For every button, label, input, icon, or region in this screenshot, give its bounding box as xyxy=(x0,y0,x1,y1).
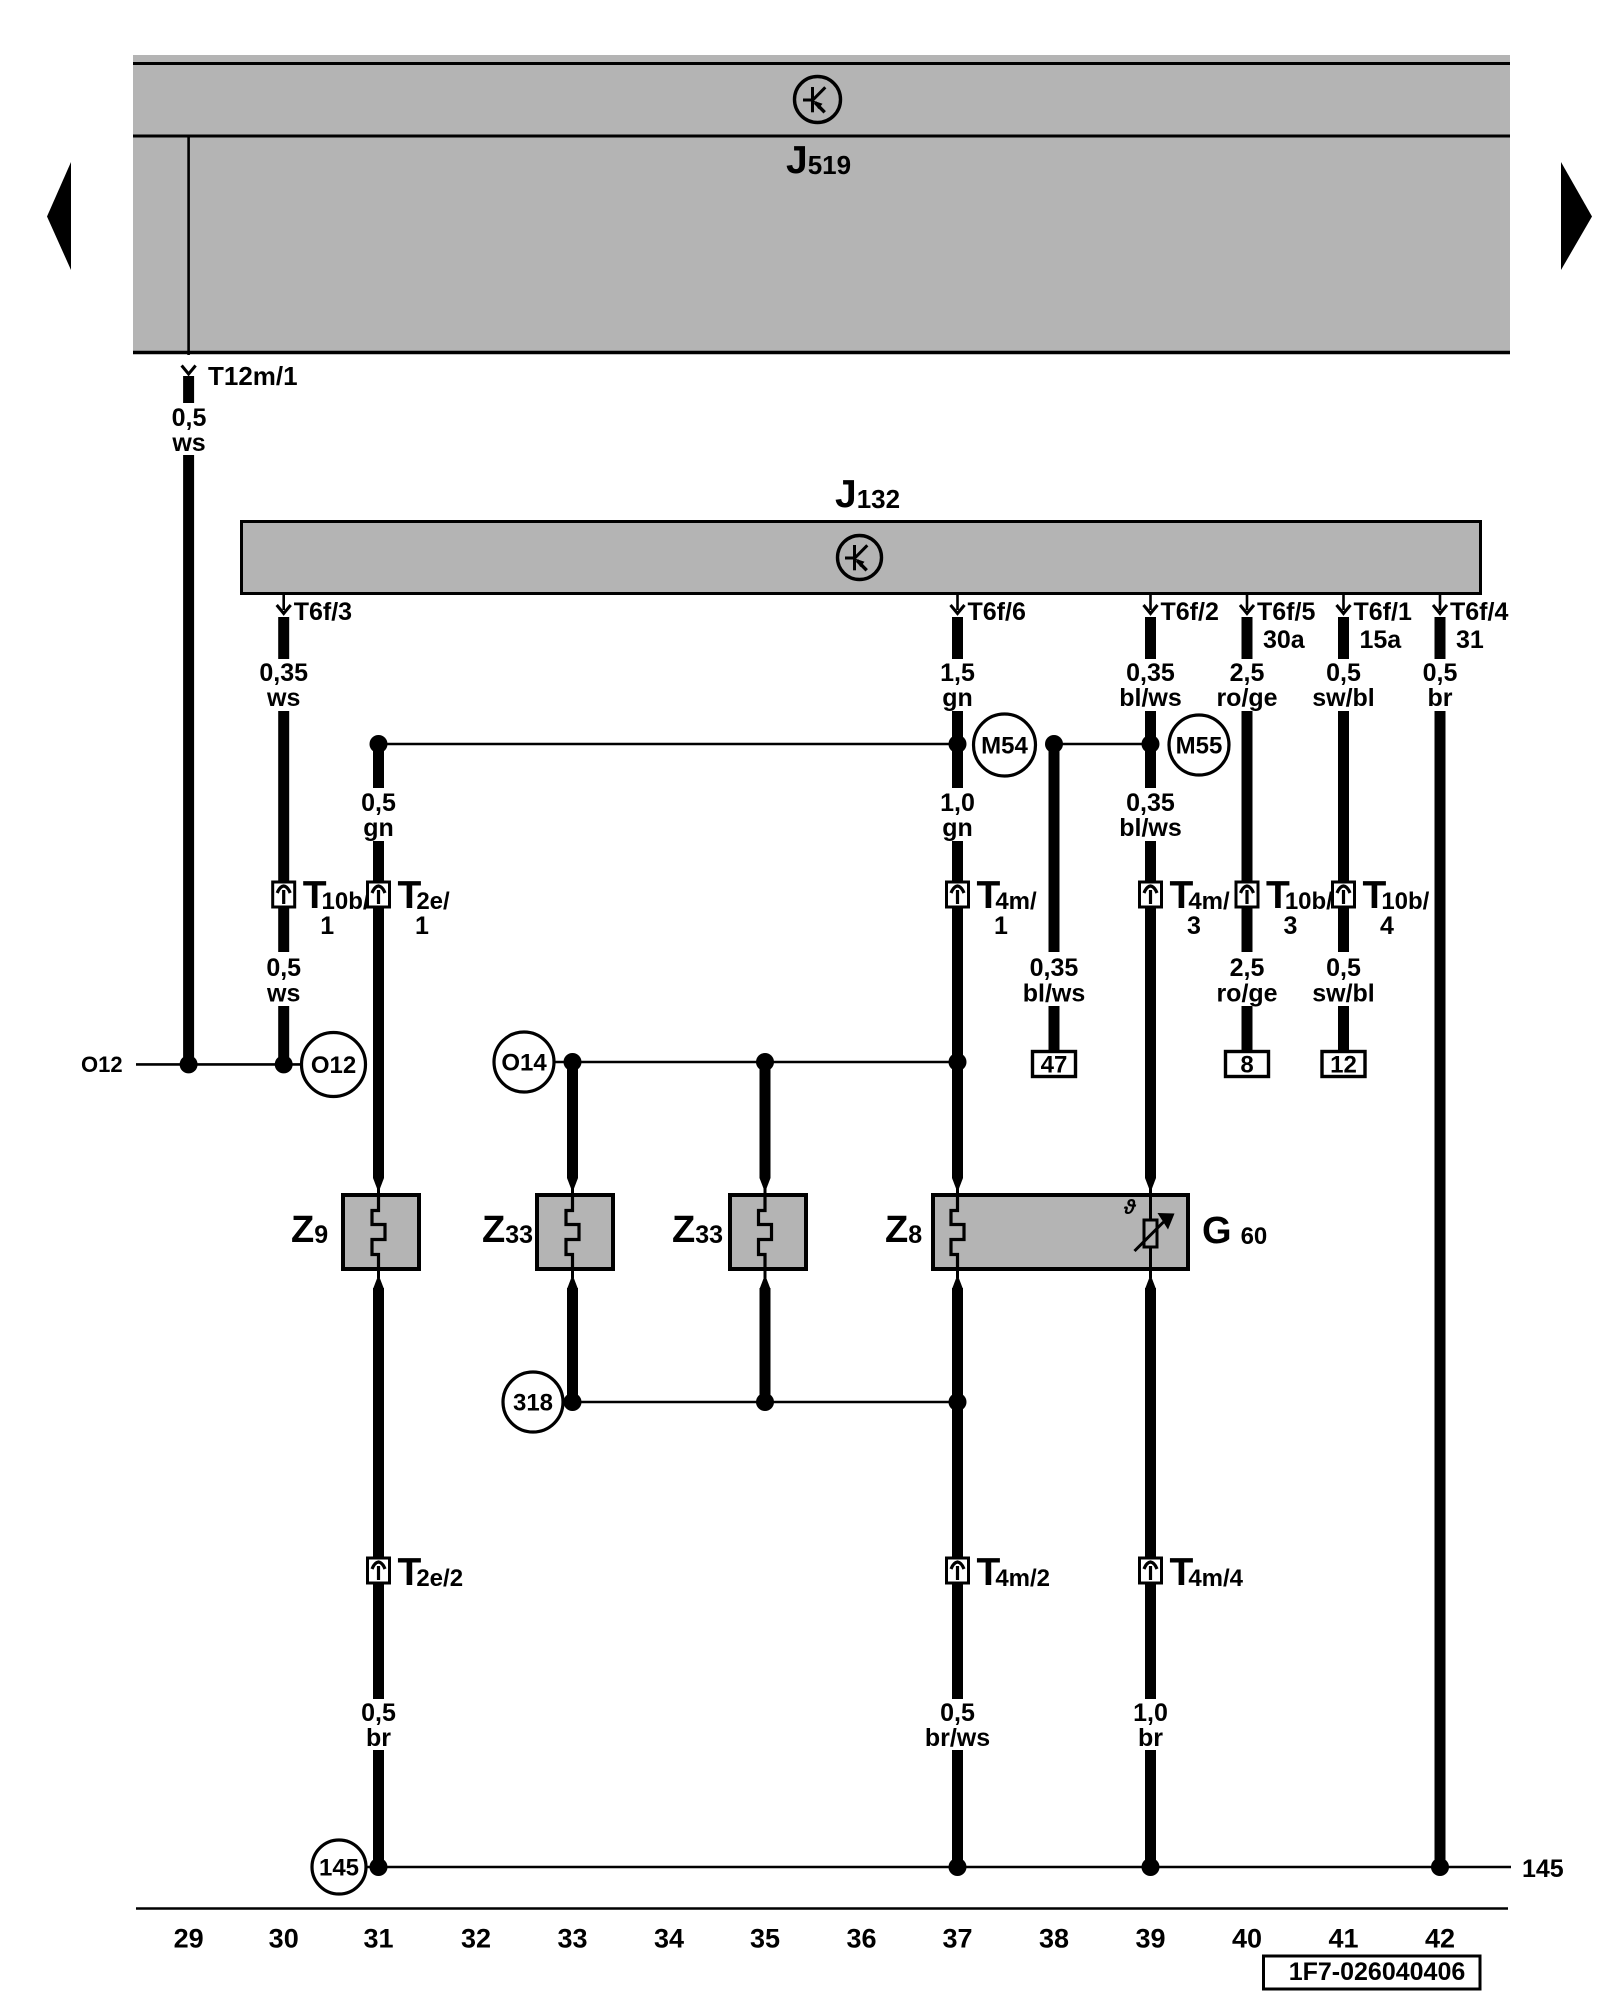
svg-text:0,35: 0,35 xyxy=(259,659,308,687)
svg-text:T4m/2: T4m/2 xyxy=(977,1551,1051,1594)
svg-text:T4m/4: T4m/4 xyxy=(1170,1551,1244,1594)
svg-text:J132: J132 xyxy=(835,473,900,516)
svg-text:1: 1 xyxy=(994,912,1008,940)
svg-text:T10b/: T10b/ xyxy=(1363,874,1430,917)
svg-text:2,5: 2,5 xyxy=(1230,954,1265,982)
svg-text:T4m/: T4m/ xyxy=(977,874,1038,917)
svg-text:33: 33 xyxy=(557,1924,587,1954)
svg-text:ws: ws xyxy=(266,684,300,712)
svg-text:3: 3 xyxy=(1284,912,1298,940)
svg-text:T2e/: T2e/ xyxy=(398,874,451,917)
svg-text:0,5: 0,5 xyxy=(940,1699,975,1727)
svg-text:1F7-026040406: 1F7-026040406 xyxy=(1289,1958,1466,1986)
svg-text:T4m/: T4m/ xyxy=(1170,874,1231,917)
svg-text:G60: G60 xyxy=(1202,1210,1267,1252)
svg-text:29: 29 xyxy=(174,1924,204,1954)
svg-text:ro/ge: ro/ge xyxy=(1216,684,1277,712)
svg-text:gn: gn xyxy=(942,814,973,842)
svg-text:4: 4 xyxy=(1380,912,1394,940)
svg-text:Z8: Z8 xyxy=(885,1209,922,1251)
svg-text:0,5: 0,5 xyxy=(266,954,301,982)
svg-text:ϑ: ϑ xyxy=(1123,1197,1137,1219)
svg-text:1: 1 xyxy=(320,912,334,940)
svg-text:38: 38 xyxy=(1039,1924,1069,1954)
svg-text:gn: gn xyxy=(942,684,973,712)
svg-text:42: 42 xyxy=(1425,1924,1455,1954)
svg-text:M55: M55 xyxy=(1176,733,1223,760)
svg-text:0,35: 0,35 xyxy=(1030,954,1079,982)
svg-text:32: 32 xyxy=(461,1924,491,1954)
svg-text:12: 12 xyxy=(1330,1052,1357,1079)
svg-text:8: 8 xyxy=(1240,1052,1253,1079)
svg-text:41: 41 xyxy=(1328,1924,1358,1954)
svg-text:0,5: 0,5 xyxy=(1423,659,1458,687)
svg-text:sw/bl: sw/bl xyxy=(1312,684,1375,712)
svg-text:br: br xyxy=(366,1724,391,1752)
svg-text:34: 34 xyxy=(654,1924,684,1954)
svg-text:3: 3 xyxy=(1187,912,1201,940)
svg-text:T2e/2: T2e/2 xyxy=(398,1551,464,1594)
svg-text:15a: 15a xyxy=(1360,626,1403,654)
svg-text:40: 40 xyxy=(1232,1924,1262,1954)
svg-text:O12: O12 xyxy=(311,1052,356,1079)
svg-text:37: 37 xyxy=(942,1924,972,1954)
svg-text:O14: O14 xyxy=(501,1050,547,1077)
svg-text:0,35: 0,35 xyxy=(1126,659,1175,687)
svg-text:bl/ws: bl/ws xyxy=(1119,684,1182,712)
svg-text:sw/bl: sw/bl xyxy=(1312,980,1375,1008)
svg-text:31: 31 xyxy=(363,1924,393,1954)
svg-text:T6f/3: T6f/3 xyxy=(294,598,352,626)
svg-text:47: 47 xyxy=(1041,1052,1068,1079)
svg-text:36: 36 xyxy=(846,1924,876,1954)
svg-text:ro/ge: ro/ge xyxy=(1216,980,1277,1008)
svg-text:1,0: 1,0 xyxy=(1133,1699,1168,1727)
svg-text:145: 145 xyxy=(319,1855,359,1882)
svg-text:39: 39 xyxy=(1135,1924,1165,1954)
svg-text:T6f/5: T6f/5 xyxy=(1257,598,1315,626)
svg-text:T6f/6: T6f/6 xyxy=(968,598,1026,626)
svg-text:31: 31 xyxy=(1456,626,1484,654)
svg-text:O12: O12 xyxy=(81,1052,123,1077)
svg-text:br: br xyxy=(1428,684,1453,712)
svg-text:Z9: Z9 xyxy=(291,1209,328,1251)
svg-text:318: 318 xyxy=(513,1390,553,1417)
svg-text:br/ws: br/ws xyxy=(925,1724,990,1752)
svg-text:ws: ws xyxy=(171,429,205,457)
svg-text:T10b/: T10b/ xyxy=(1266,874,1333,917)
svg-text:T6f/1: T6f/1 xyxy=(1354,598,1412,626)
svg-text:Z33: Z33 xyxy=(482,1209,533,1251)
svg-text:Z33: Z33 xyxy=(672,1209,723,1251)
svg-text:T6f/4: T6f/4 xyxy=(1450,598,1508,626)
svg-text:30a: 30a xyxy=(1263,626,1306,654)
svg-text:0,5: 0,5 xyxy=(1326,954,1361,982)
svg-text:0,5: 0,5 xyxy=(172,404,207,432)
svg-text:2,5: 2,5 xyxy=(1230,659,1265,687)
svg-text:0,5: 0,5 xyxy=(1326,659,1361,687)
svg-text:30: 30 xyxy=(269,1924,299,1954)
svg-text:bl/ws: bl/ws xyxy=(1023,980,1086,1008)
svg-text:1,5: 1,5 xyxy=(940,659,975,687)
svg-text:1: 1 xyxy=(415,912,429,940)
svg-text:0,35: 0,35 xyxy=(1126,789,1175,817)
svg-text:br: br xyxy=(1138,1724,1163,1752)
svg-text:0,5: 0,5 xyxy=(361,1699,396,1727)
svg-text:M54: M54 xyxy=(981,733,1028,760)
svg-text:ws: ws xyxy=(266,980,300,1008)
svg-text:0,5: 0,5 xyxy=(361,789,396,817)
svg-text:bl/ws: bl/ws xyxy=(1119,814,1182,842)
svg-text:T10b/: T10b/ xyxy=(303,874,370,917)
svg-text:145: 145 xyxy=(1522,1855,1564,1883)
svg-text:T12m/1: T12m/1 xyxy=(208,361,298,391)
svg-text:35: 35 xyxy=(750,1924,780,1954)
svg-text:gn: gn xyxy=(363,814,394,842)
svg-text:1,0: 1,0 xyxy=(940,789,975,817)
svg-text:T6f/2: T6f/2 xyxy=(1161,598,1219,626)
